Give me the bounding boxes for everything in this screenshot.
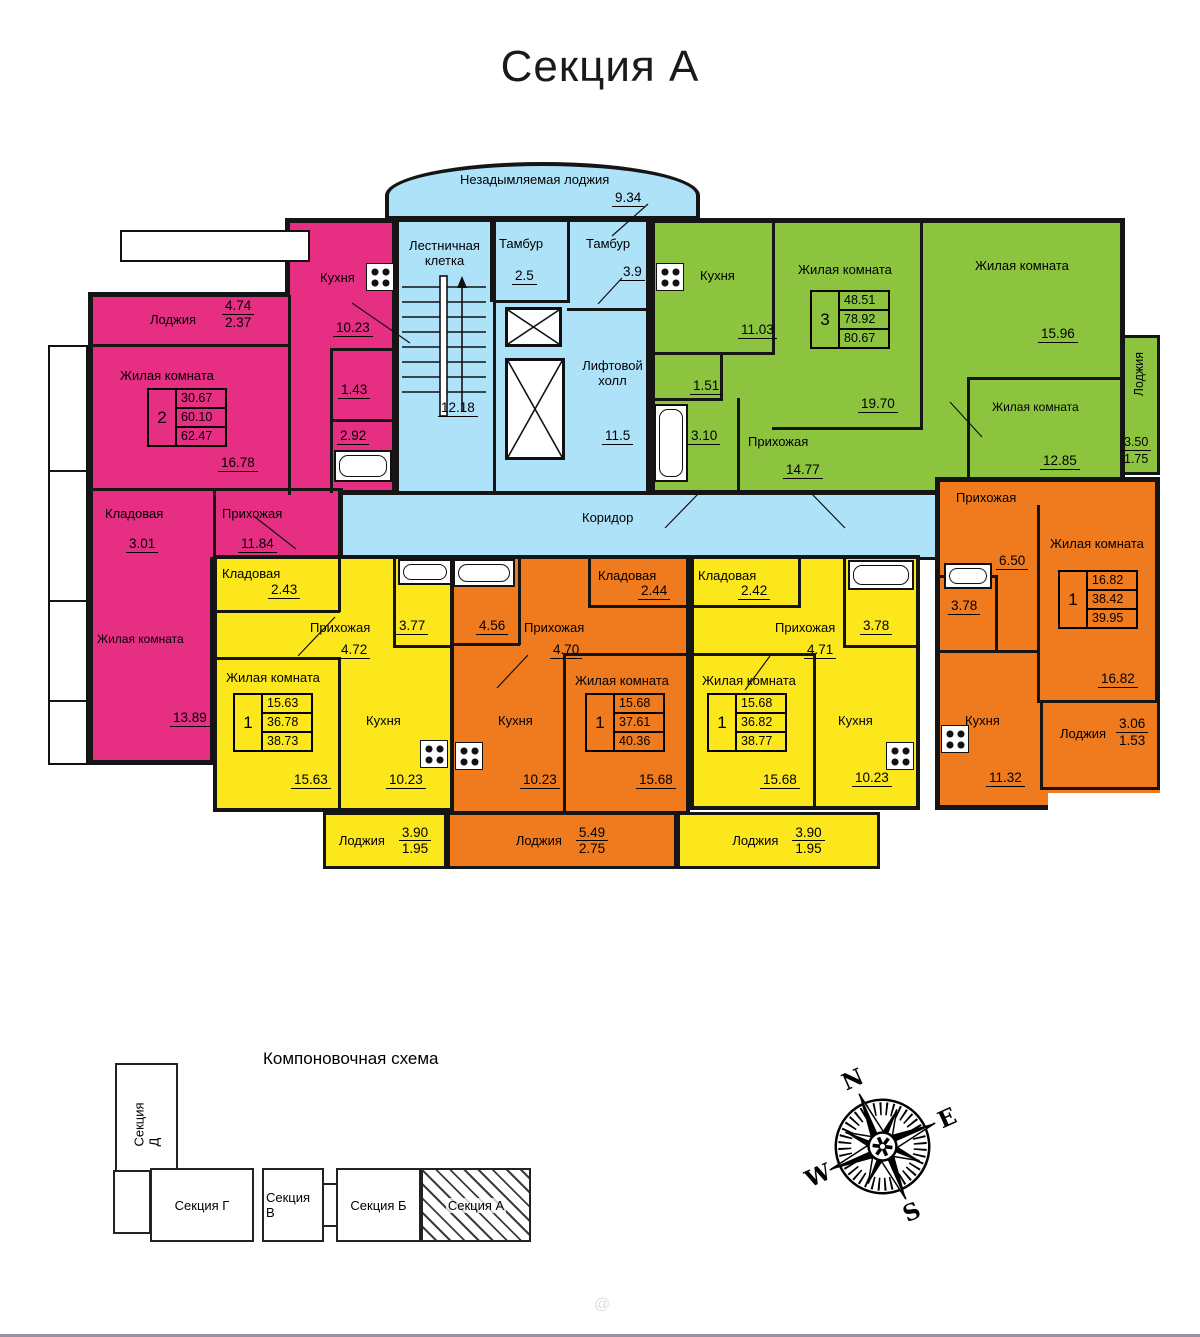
wall: [650, 218, 1125, 223]
wall: [330, 419, 397, 422]
loggia-label: Лоджия: [732, 833, 778, 848]
area-staircase: 12.18: [438, 400, 478, 417]
area-om-bath: 4.56: [476, 618, 508, 635]
area-pink-kitchen: 10.23: [333, 320, 373, 337]
label-orange-right-living: Жилая комната: [1050, 536, 1144, 551]
area-pink-hall: 11.84: [238, 536, 277, 553]
apartment-stamp-yellow-left: 1 15.63 36.78 38.73: [233, 693, 313, 752]
label-om-hall: Прихожая: [524, 620, 584, 635]
compass-w: W: [800, 1159, 835, 1194]
wall: [518, 555, 521, 645]
area-yr-bath: 3.78: [860, 618, 892, 635]
label-orange-right-hall: Прихожая: [956, 490, 1016, 505]
area-pink-living1: 16.78: [218, 455, 258, 472]
label-pink-hall: Прихожая: [222, 506, 282, 521]
bathtub-icon: [944, 563, 992, 589]
wall: [940, 650, 1040, 653]
wall: [213, 490, 216, 560]
stove-icon: [455, 742, 483, 770]
wall: [338, 490, 343, 562]
wall: [48, 600, 88, 602]
area-om-living: 15.68: [636, 772, 676, 789]
area-om-storage: 2.44: [638, 583, 670, 600]
area-yl-kitchen: 10.23: [386, 772, 426, 789]
label-green-kitchen: Кухня: [700, 268, 735, 283]
apartment-stamp-pink: 2 30.67 60.10 62.47: [147, 388, 227, 447]
bathtub-icon: [848, 560, 914, 590]
wall: [88, 760, 215, 765]
area-tambour-left: 2.5: [512, 268, 537, 285]
area-smokefree-loggia: 9.34: [612, 190, 644, 207]
area-green-living2: 15.96: [1038, 326, 1078, 343]
wall: [995, 575, 998, 653]
wall: [88, 292, 290, 297]
label-green-living2: Жилая комната: [975, 258, 1069, 273]
bathtub-icon: [654, 404, 688, 482]
wall: [330, 348, 333, 493]
wall: [213, 657, 340, 660]
compass-n: N: [838, 1064, 868, 1096]
compass-e: E: [934, 1103, 961, 1134]
wall: [650, 490, 943, 495]
loggia-area: 5.49: [576, 825, 608, 841]
label-tambour-left: Тамбур: [499, 236, 543, 251]
area-pink-storage: 3.01: [126, 536, 158, 553]
label-green-hall: Прихожая: [748, 434, 808, 449]
wall: [48, 470, 88, 472]
label-staircase: Лестничная клетка: [397, 238, 492, 268]
wall: [843, 645, 920, 648]
label-orange-right-kitchen: Кухня: [965, 713, 1000, 728]
wall: [88, 344, 290, 347]
loggia-yellow-right: Лоджия 3.901.95: [677, 812, 880, 869]
wall: [588, 605, 690, 608]
label-yl-storage: Кладовая: [222, 566, 280, 581]
wall: [285, 218, 397, 223]
watermark: @: [594, 1296, 610, 1314]
loggia-yellow-left: Лоджия 3.901.95: [323, 812, 447, 869]
area-green-bath: 3.10: [688, 428, 720, 445]
wall: [967, 377, 970, 482]
wall: [48, 700, 88, 702]
area-green-kitchen: 11.03: [738, 322, 777, 339]
label-green-loggia: Лоджия: [1132, 352, 1146, 396]
stove-icon: [656, 263, 684, 291]
wall: [650, 352, 775, 355]
scheme-section-g: Секция Г: [150, 1168, 254, 1242]
wall: [588, 555, 591, 608]
compass-s: S: [899, 1198, 925, 1228]
area-orange-right-bath: 3.78: [948, 598, 980, 615]
scheme-section-d: Секция Д: [115, 1063, 178, 1175]
wall: [920, 218, 923, 430]
stove-icon: [420, 740, 448, 768]
stove-icon: [886, 742, 914, 770]
wall: [493, 218, 496, 495]
label-tambour-right: Тамбур: [586, 236, 630, 251]
apartment-stamp-yellow-right: 1 15.68 36.82 38.77: [707, 693, 787, 752]
label-pink-loggia: Лоджия: [150, 312, 196, 327]
label-om-living: Жилая комната: [575, 673, 669, 688]
wall: [493, 300, 570, 303]
wall: [563, 653, 566, 815]
loggia-area: 3.90: [399, 825, 431, 841]
wall: [213, 610, 340, 613]
area-green-wc: 1.51: [690, 378, 722, 395]
label-smokefree-loggia: Незадымляемая лоджия: [460, 172, 609, 187]
scheme-section-a: Секция А: [421, 1168, 531, 1242]
wall: [330, 348, 397, 351]
wall: [288, 295, 291, 495]
scheme-title: Компоновочная схема: [263, 1049, 439, 1069]
wall: [690, 605, 800, 608]
label-corridor: Коридор: [582, 510, 633, 525]
label-yr-hall: Прихожая: [775, 620, 835, 635]
scheme-section-b: Секция Б: [336, 1168, 421, 1242]
area-pink-wc: 1.43: [338, 382, 370, 399]
area-lift-hall: 11.5: [602, 428, 633, 445]
wall: [690, 653, 815, 656]
balcony-rail: [120, 230, 310, 262]
area-yr-hall: 4.71: [804, 642, 836, 659]
loggia-orange-mid: Лоджия 5.492.75: [447, 812, 677, 869]
area-yl-storage: 2.43: [268, 582, 300, 599]
label-green-living1: Жилая комната: [798, 262, 892, 277]
area-green-hall: 14.77: [783, 462, 823, 479]
wall: [393, 645, 455, 648]
area-green-loggia: 3.501.75: [1121, 434, 1151, 467]
label-om-storage: Кладовая: [598, 568, 656, 583]
wall: [737, 398, 740, 490]
bathtub-icon: [398, 559, 452, 585]
area-om-kitchen: 10.23: [520, 772, 560, 789]
stove-icon: [941, 725, 969, 753]
label-yl-hall: Прихожая: [310, 620, 370, 635]
bathtub-icon: [453, 559, 515, 587]
label-yr-kitchen: Кухня: [838, 713, 873, 728]
area-yl-living: 15.63: [291, 772, 331, 789]
area-orange-right-hall: 6.50: [996, 553, 1028, 570]
wall: [935, 477, 940, 810]
area-pink-loggia: 4.742.37: [222, 298, 254, 331]
label-pink-living1: Жилая комната: [120, 368, 214, 383]
wall: [1037, 505, 1040, 703]
page-title: Секция А: [0, 42, 1200, 92]
outside-patch: [1048, 793, 1160, 813]
loggia-label: Лоджия: [339, 833, 385, 848]
area-tambour-right: 3.9: [620, 264, 645, 281]
wall: [772, 427, 923, 430]
area-yl-hall: 4.72: [338, 642, 370, 659]
scheme-section-blank: [113, 1170, 151, 1234]
label-green-living3: Жилая комната: [992, 400, 1079, 415]
label-orange-right-loggia: Лоджия: [1060, 726, 1106, 741]
label-om-kitchen: Кухня: [498, 713, 533, 728]
label-lift-hall: Лифтовой холл: [570, 358, 655, 388]
label-yr-living: Жилая комната: [702, 673, 796, 688]
compass-rose: N E S W: [795, 1055, 970, 1240]
wall: [567, 222, 570, 302]
area-yr-storage: 2.42: [738, 583, 770, 600]
wall: [650, 398, 723, 401]
wall: [967, 377, 1125, 380]
area-om-hall: 4.70: [550, 642, 582, 659]
bathtub-icon: [334, 450, 392, 482]
area-yr-living: 15.68: [760, 772, 800, 789]
loggia-label: Лоджия: [516, 833, 562, 848]
room-smokefree-loggia: [385, 162, 700, 220]
wall: [813, 653, 816, 810]
room-corridor: [335, 492, 940, 560]
floor-plan-canvas: Секция А: [0, 0, 1200, 1337]
wall: [338, 555, 341, 612]
area-orange-right-kitchen: 11.32: [986, 770, 1025, 787]
area-green-living3: 12.85: [1040, 453, 1080, 470]
area-green-living1: 19.70: [858, 396, 898, 413]
apartment-stamp-green: 3 48.51 78.92 80.67: [810, 290, 890, 349]
stove-icon: [366, 263, 394, 291]
label-yl-kitchen: Кухня: [366, 713, 401, 728]
area-pink-living2: 13.89: [170, 710, 210, 727]
apartment-stamp-orange-right: 1 16.82 38.42 39.95: [1058, 570, 1138, 629]
area-yl-bath: 3.77: [396, 618, 428, 635]
wall: [935, 805, 1048, 810]
wall: [450, 643, 520, 646]
area-yr-kitchen: 10.23: [852, 770, 892, 787]
label-yl-living: Жилая комната: [226, 670, 320, 685]
wall: [567, 308, 650, 311]
loggia-area: 3.90: [792, 825, 824, 841]
label-pink-living2: Жилая комната: [97, 632, 184, 647]
area-pink-bath: 2.92: [337, 428, 369, 445]
apartment-stamp-orange-mid: 1 15.68 37.61 40.36: [585, 693, 665, 752]
wall: [338, 657, 341, 812]
label-pink-storage: Кладовая: [105, 506, 163, 521]
label-yr-storage: Кладовая: [698, 568, 756, 583]
wall: [798, 555, 801, 608]
wall: [88, 292, 93, 765]
wall: [340, 490, 397, 495]
area-orange-right-living: 16.82: [1098, 671, 1138, 688]
label-pink-kitchen: Кухня: [320, 270, 355, 285]
wall: [843, 555, 846, 647]
area-orange-right-loggia: 3.061.53: [1116, 716, 1148, 749]
scheme-section-v: Секция В: [262, 1168, 324, 1242]
wall: [935, 477, 1160, 482]
balcony-strip: [48, 345, 88, 765]
